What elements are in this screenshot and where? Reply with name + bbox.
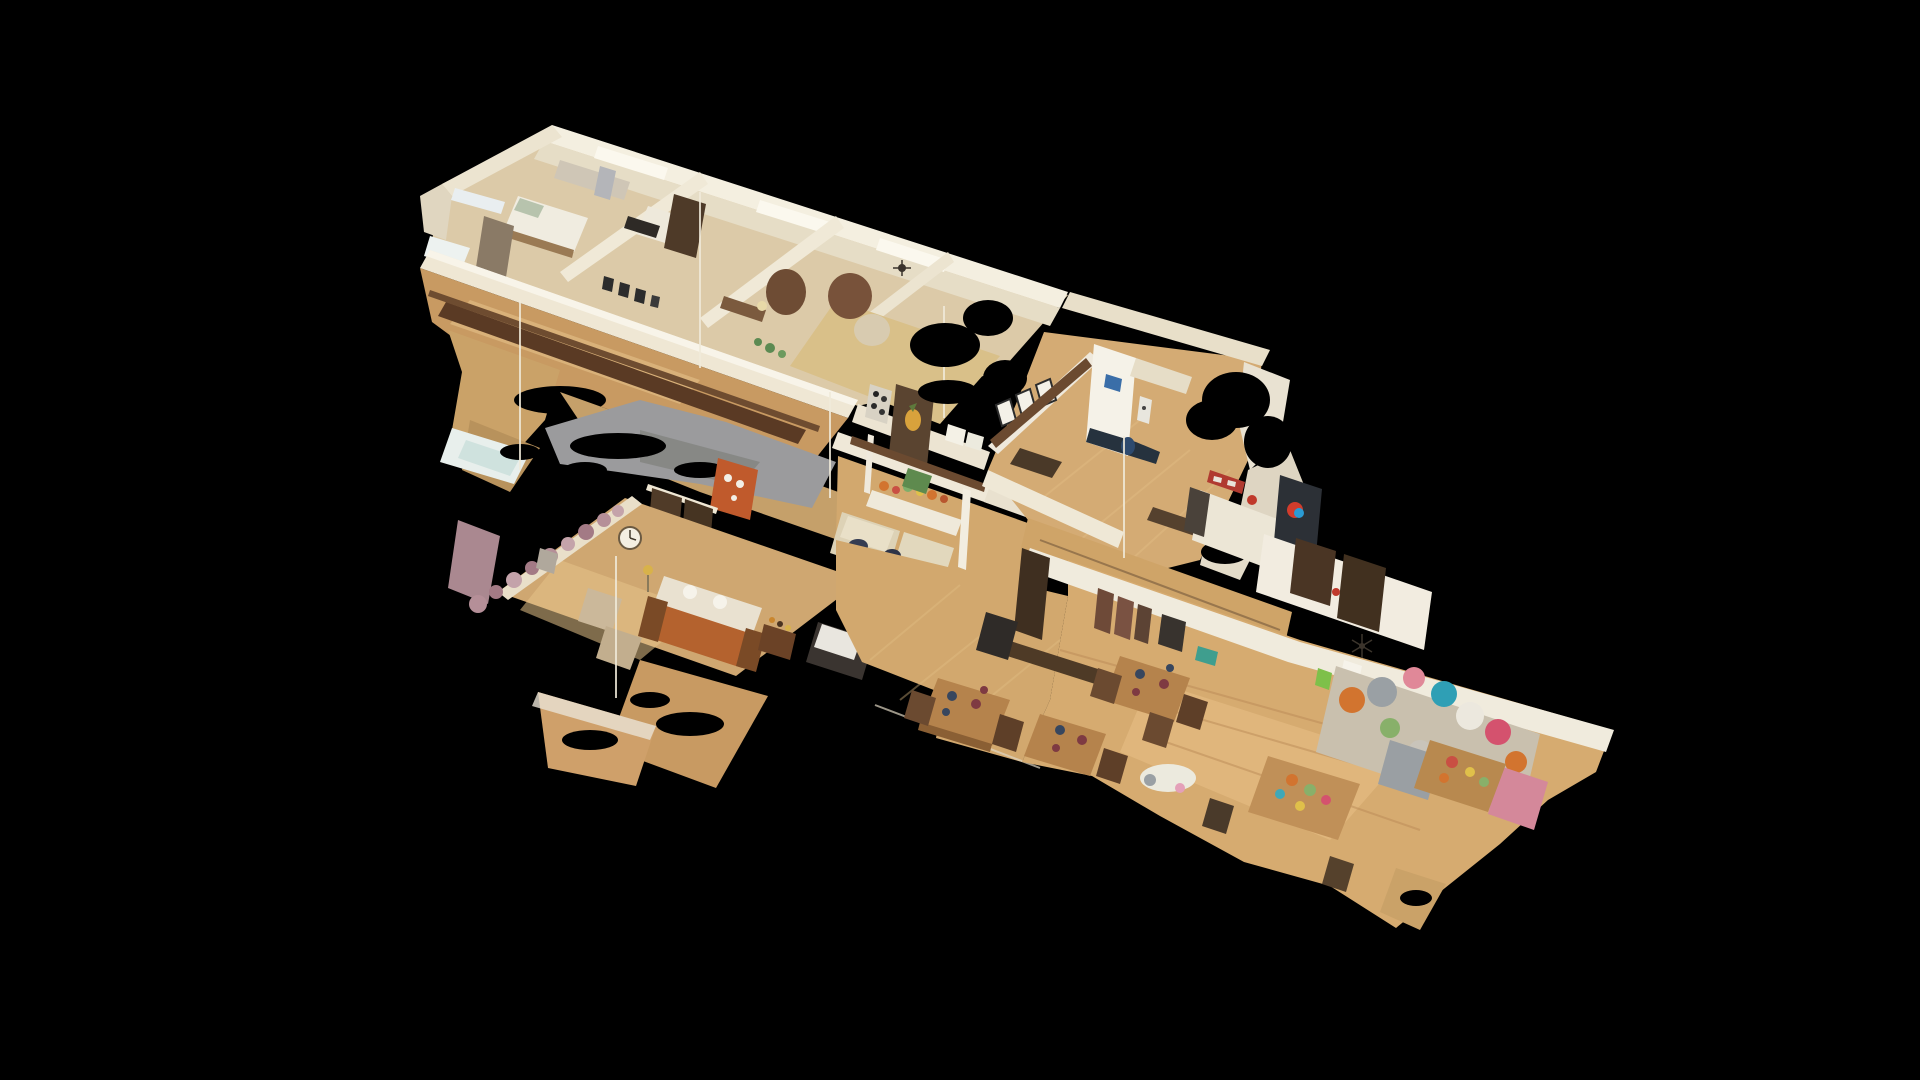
craft-item	[1175, 783, 1185, 793]
scan-hole	[570, 433, 666, 459]
floral-garland	[469, 595, 487, 613]
console-flower	[892, 486, 900, 494]
table-lamp	[643, 565, 653, 575]
scan-hole	[1400, 890, 1432, 906]
console-flower	[879, 481, 889, 491]
floral-garland	[489, 585, 503, 599]
scan-hole	[630, 692, 670, 708]
sofa-doily	[713, 595, 727, 609]
placemat-red	[1159, 679, 1169, 689]
pineapple-art	[905, 409, 921, 431]
fire-extinguisher	[1332, 588, 1340, 596]
bulletin-photo	[879, 409, 885, 415]
leaf-wall-decal	[754, 338, 762, 346]
dark-door	[1337, 554, 1386, 632]
scan-hole	[562, 730, 618, 750]
recliner	[854, 314, 890, 346]
craft-item	[1295, 801, 1305, 811]
dispenser-dot	[1142, 406, 1146, 410]
craft-item	[1321, 795, 1331, 805]
craft-item	[1304, 784, 1316, 796]
console-flower	[940, 495, 948, 503]
scan-hole	[918, 380, 978, 404]
floral-garland	[597, 513, 611, 527]
floral-garland	[578, 524, 594, 540]
scan-hole	[983, 360, 1027, 396]
scan-hole	[656, 712, 724, 736]
table-bottle	[769, 617, 775, 623]
bulletin-photo	[881, 396, 887, 402]
craft-blob	[1339, 687, 1365, 713]
recliner	[828, 273, 872, 319]
recliner	[766, 269, 806, 315]
craft-item	[1439, 773, 1449, 783]
scan-hole	[1244, 416, 1292, 468]
floral-garland	[506, 572, 522, 588]
table-bottle	[777, 621, 783, 627]
craft-blob	[1456, 702, 1484, 730]
floral-garland	[612, 505, 624, 517]
bulletin-photo	[873, 391, 879, 397]
scan-hole	[1186, 400, 1238, 440]
placemat-blue	[942, 708, 950, 716]
dollhouse-3d-view[interactable]	[0, 0, 1920, 1080]
placemat-blue	[1055, 725, 1065, 735]
craft-item	[1144, 774, 1156, 786]
floor-lamp	[757, 301, 767, 311]
scan-hole	[563, 462, 607, 478]
craft-item	[1479, 777, 1489, 787]
bulletin-paper	[731, 495, 737, 501]
craft-blob	[1380, 718, 1400, 738]
placemat-blue	[947, 691, 957, 701]
bulletin-photo	[871, 403, 877, 409]
craft-blob	[1431, 681, 1457, 707]
placemat-blue	[1166, 664, 1174, 672]
floral-garland	[561, 537, 575, 551]
craft-item	[1275, 789, 1285, 799]
craft-blob	[1485, 719, 1511, 745]
fire-extinguisher	[1247, 495, 1257, 505]
craft-blob	[1367, 677, 1397, 707]
viewer-stage	[0, 0, 1920, 1080]
craft-item	[1446, 756, 1458, 768]
console-flower	[927, 490, 937, 500]
bulletin-paper	[736, 480, 744, 488]
scan-hole	[963, 300, 1013, 336]
placemat-red	[1077, 735, 1087, 745]
craft-blob	[1403, 667, 1425, 689]
beach-ball-half	[1294, 508, 1304, 518]
placemat-red	[980, 686, 988, 694]
leaf-wall-decal	[778, 350, 786, 358]
placemat-red	[971, 699, 981, 709]
craft-item	[1286, 774, 1298, 786]
placemat-red	[1052, 744, 1060, 752]
table-bottle	[785, 625, 791, 631]
placemat-red	[1132, 688, 1140, 696]
placemat-blue	[1135, 669, 1145, 679]
bulletin-paper	[724, 474, 732, 482]
leaf-wall-decal	[765, 343, 775, 353]
craft-item	[1465, 767, 1475, 777]
sofa-doily	[683, 585, 697, 599]
